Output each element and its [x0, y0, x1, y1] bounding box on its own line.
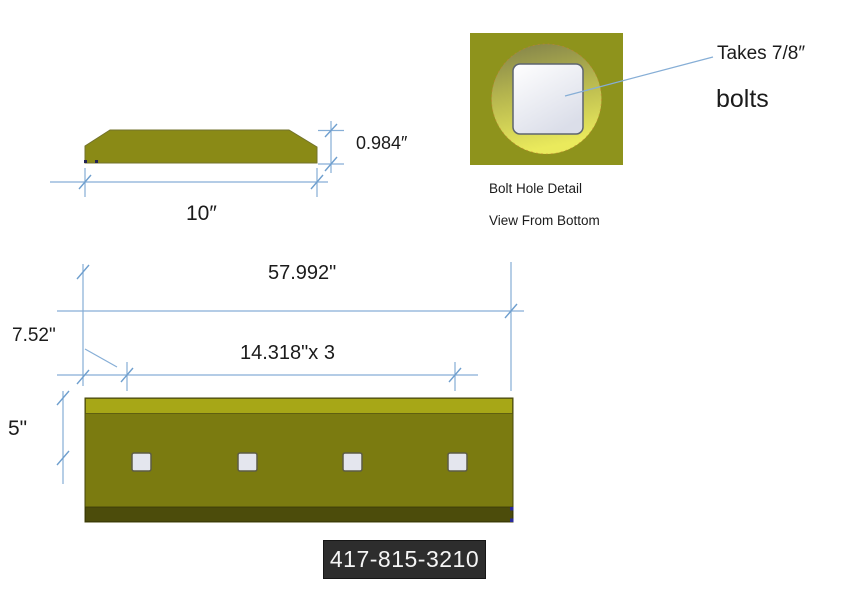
- detail-caption-line2: View From Bottom: [489, 214, 600, 229]
- bolt-hole: [343, 453, 362, 471]
- bolt-hole: [132, 453, 151, 471]
- bolt-note-line1: Takes 7/8″: [717, 44, 805, 65]
- profile-thickness-dimension-label: 0.984″: [356, 134, 407, 154]
- overall-length-dimension-label: 57.992": [268, 262, 336, 284]
- blade-bottom-view: [85, 398, 514, 522]
- detail-caption-line1: Bolt Hole Detail: [489, 182, 582, 197]
- profile-width-dimension-label: 10″: [186, 202, 217, 225]
- profile-cross-section-shape: [85, 130, 317, 163]
- hole-spacing-dimension-label: 14.318"x 3: [240, 342, 335, 364]
- profile-endpoint-dot: [95, 160, 98, 163]
- engineering-drawing-page: 0.984″ 10″ Takes 7/8″ bolts Bolt Hole De…: [0, 0, 849, 600]
- blade-endpoint-dot: [510, 507, 514, 511]
- profile-view: [84, 130, 317, 163]
- end-offset-dimension-label: 7.52": [12, 326, 56, 347]
- bolt-hole: [448, 453, 467, 471]
- detail-square-hole: [513, 64, 583, 134]
- bolt-hole-detail-view: [470, 33, 713, 165]
- phone-number-badge: 417-815-3210: [323, 540, 486, 579]
- blade-top-strip: [86, 399, 513, 414]
- phone-number-text: 417-815-3210: [330, 546, 479, 573]
- profile-endpoint-dot: [84, 160, 87, 163]
- bolt-hole: [238, 453, 257, 471]
- blade-bottom-strip: [86, 507, 513, 522]
- blade-endpoint-dot: [510, 519, 514, 523]
- hole-center-dimension-label: 5": [8, 417, 27, 440]
- bolt-note-line2: bolts: [716, 86, 769, 114]
